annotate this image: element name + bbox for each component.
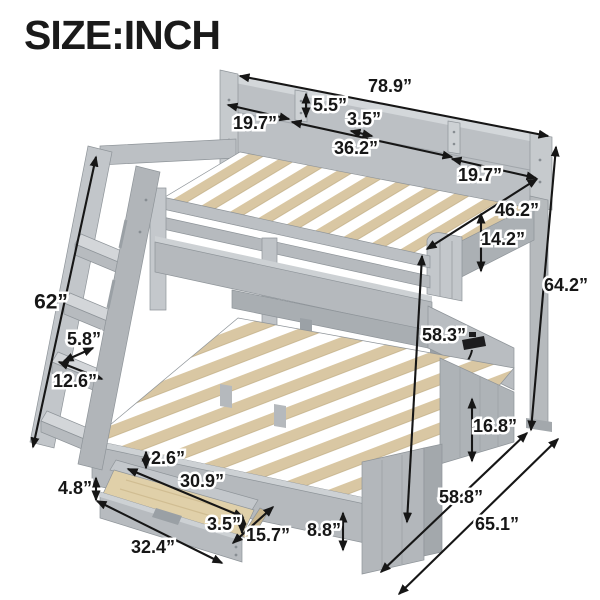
dim-label-full-bed-width: 58.8” bbox=[439, 487, 483, 507]
dim-label-footboard-height: 8.8” bbox=[307, 520, 341, 540]
bunk-bed-dimension-drawing: 78.9” 5.5” 19.7” 3.5” 36.2” 19.7” 46.2” … bbox=[0, 0, 600, 600]
dim-label-shelf-compartment-left: 19.7” bbox=[233, 113, 277, 133]
charger-plug bbox=[469, 332, 476, 337]
dim-label-drawer-front-lip: 3.5” bbox=[207, 514, 241, 534]
shelf-divider-right bbox=[448, 121, 460, 154]
dim-label-drawer-length: 32.4” bbox=[131, 537, 175, 557]
dim-label-step-thickness: 5.8” bbox=[67, 329, 101, 349]
top-bunk-right-corner-panel bbox=[427, 233, 462, 301]
dim-label-drawer-side-height: 4.8” bbox=[58, 478, 92, 498]
dim-label-shelf-compartment-right: 19.7” bbox=[458, 165, 502, 185]
size-diagram: SIZE:INCH bbox=[0, 0, 600, 600]
dim-label-overall-depth: 65.1” bbox=[475, 514, 519, 534]
dim-label-shelf-height: 5.5” bbox=[313, 95, 347, 115]
dim-label-overall-height: 64.2” bbox=[544, 275, 588, 295]
dim-label-drawer-inner-depth: 2.6” bbox=[151, 448, 185, 468]
dim-label-overall-length: 78.9” bbox=[368, 76, 412, 96]
dim-label-top-bunk-width: 46.2” bbox=[495, 200, 539, 220]
dim-label-shelf-board-thickness: 3.5” bbox=[347, 109, 381, 129]
footboard-panel bbox=[362, 448, 424, 574]
top-bunk-head-rail bbox=[100, 139, 236, 165]
center-rail-support bbox=[220, 384, 232, 408]
dim-label-guardrail-height: 14.2” bbox=[481, 229, 525, 249]
bottom-bunk bbox=[92, 318, 514, 574]
dim-label-step-depth: 12.6” bbox=[53, 371, 97, 391]
dim-label-under-bed-clearance: 16.8” bbox=[473, 416, 517, 436]
dim-label-drawer-width: 15.7” bbox=[246, 525, 290, 545]
dim-label-staircase-length: 62” bbox=[34, 291, 68, 314]
dim-label-floor-to-guardrail: 58.3” bbox=[422, 325, 466, 345]
dim-label-drawer-inner-length: 30.9” bbox=[180, 471, 224, 491]
dim-label-shelf-compartment-middle: 36.2” bbox=[334, 138, 378, 158]
center-rail-support bbox=[274, 404, 286, 428]
